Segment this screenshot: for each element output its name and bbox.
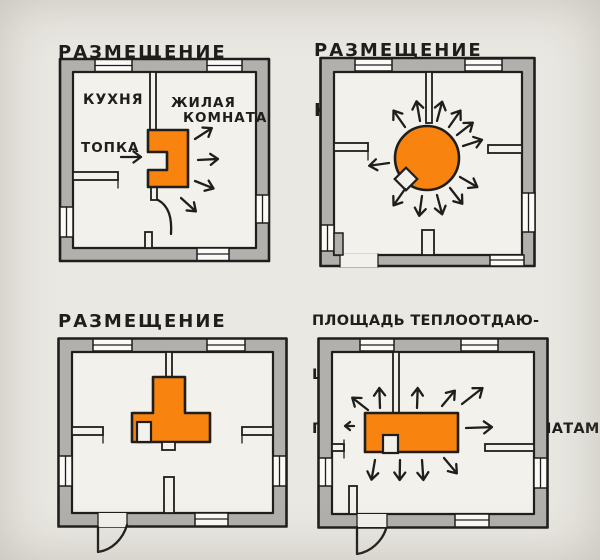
floor-plan-proportional-stove bbox=[316, 336, 550, 560]
window bbox=[95, 60, 132, 72]
stove-firebox-notch bbox=[383, 435, 398, 453]
window bbox=[93, 339, 132, 351]
scanned-diagram-page: РАЗМЕЩЕНИЕ ВАРОЧНОЙ ПЕЧИ РАЗМЕЩЕНИЕ КРУГ… bbox=[0, 0, 600, 560]
floor-plan-round-stove bbox=[318, 55, 538, 269]
label-firebox: ТОПКА bbox=[81, 140, 139, 156]
wall-stub bbox=[422, 230, 434, 255]
partition-wall bbox=[151, 187, 157, 200]
vestibule-wall bbox=[349, 486, 357, 514]
entrance-door bbox=[357, 514, 387, 554]
partition-wall bbox=[393, 352, 399, 413]
window bbox=[195, 513, 228, 526]
title-line: РАЗМЕЩЕНИЕ bbox=[58, 312, 227, 331]
title-line: ПЛОЩАДЬ ТЕПЛООТДАЮ- bbox=[312, 312, 600, 330]
window bbox=[321, 225, 334, 251]
window bbox=[197, 248, 229, 261]
wall-stub bbox=[164, 477, 174, 513]
window bbox=[490, 255, 524, 266]
partition-wall bbox=[426, 72, 432, 123]
label-living-room-line2: КОМНАТА bbox=[183, 110, 267, 126]
floor-plan-cooking-stove: КУХНЯ ЖИЛАЯ КОМНАТА ТОПКА bbox=[57, 57, 273, 263]
partition-wall bbox=[145, 232, 152, 248]
wall-step bbox=[334, 233, 343, 255]
window bbox=[256, 195, 269, 223]
window bbox=[207, 60, 242, 72]
window bbox=[522, 193, 535, 232]
window bbox=[355, 59, 392, 71]
label-living-room-line1: ЖИЛАЯ bbox=[171, 95, 236, 111]
window bbox=[534, 458, 547, 488]
window bbox=[319, 458, 332, 486]
wall-stub bbox=[488, 145, 522, 153]
window bbox=[273, 456, 286, 486]
window bbox=[360, 339, 394, 351]
stove-nub bbox=[162, 442, 175, 450]
window bbox=[465, 59, 502, 71]
stove-firebox-notch bbox=[137, 422, 151, 442]
entrance-door bbox=[98, 513, 127, 552]
partition-wall bbox=[166, 352, 172, 377]
window bbox=[455, 514, 489, 527]
doorway bbox=[340, 254, 378, 267]
label-kitchen: КУХНЯ bbox=[83, 92, 144, 108]
window bbox=[207, 339, 245, 351]
wide-stove-shape bbox=[365, 413, 458, 452]
wall-stub bbox=[485, 444, 534, 451]
partition-wall bbox=[150, 72, 156, 130]
floor-plan-t-shaped-stove bbox=[56, 336, 290, 560]
window bbox=[59, 456, 72, 486]
window bbox=[461, 339, 498, 351]
window bbox=[60, 207, 73, 237]
